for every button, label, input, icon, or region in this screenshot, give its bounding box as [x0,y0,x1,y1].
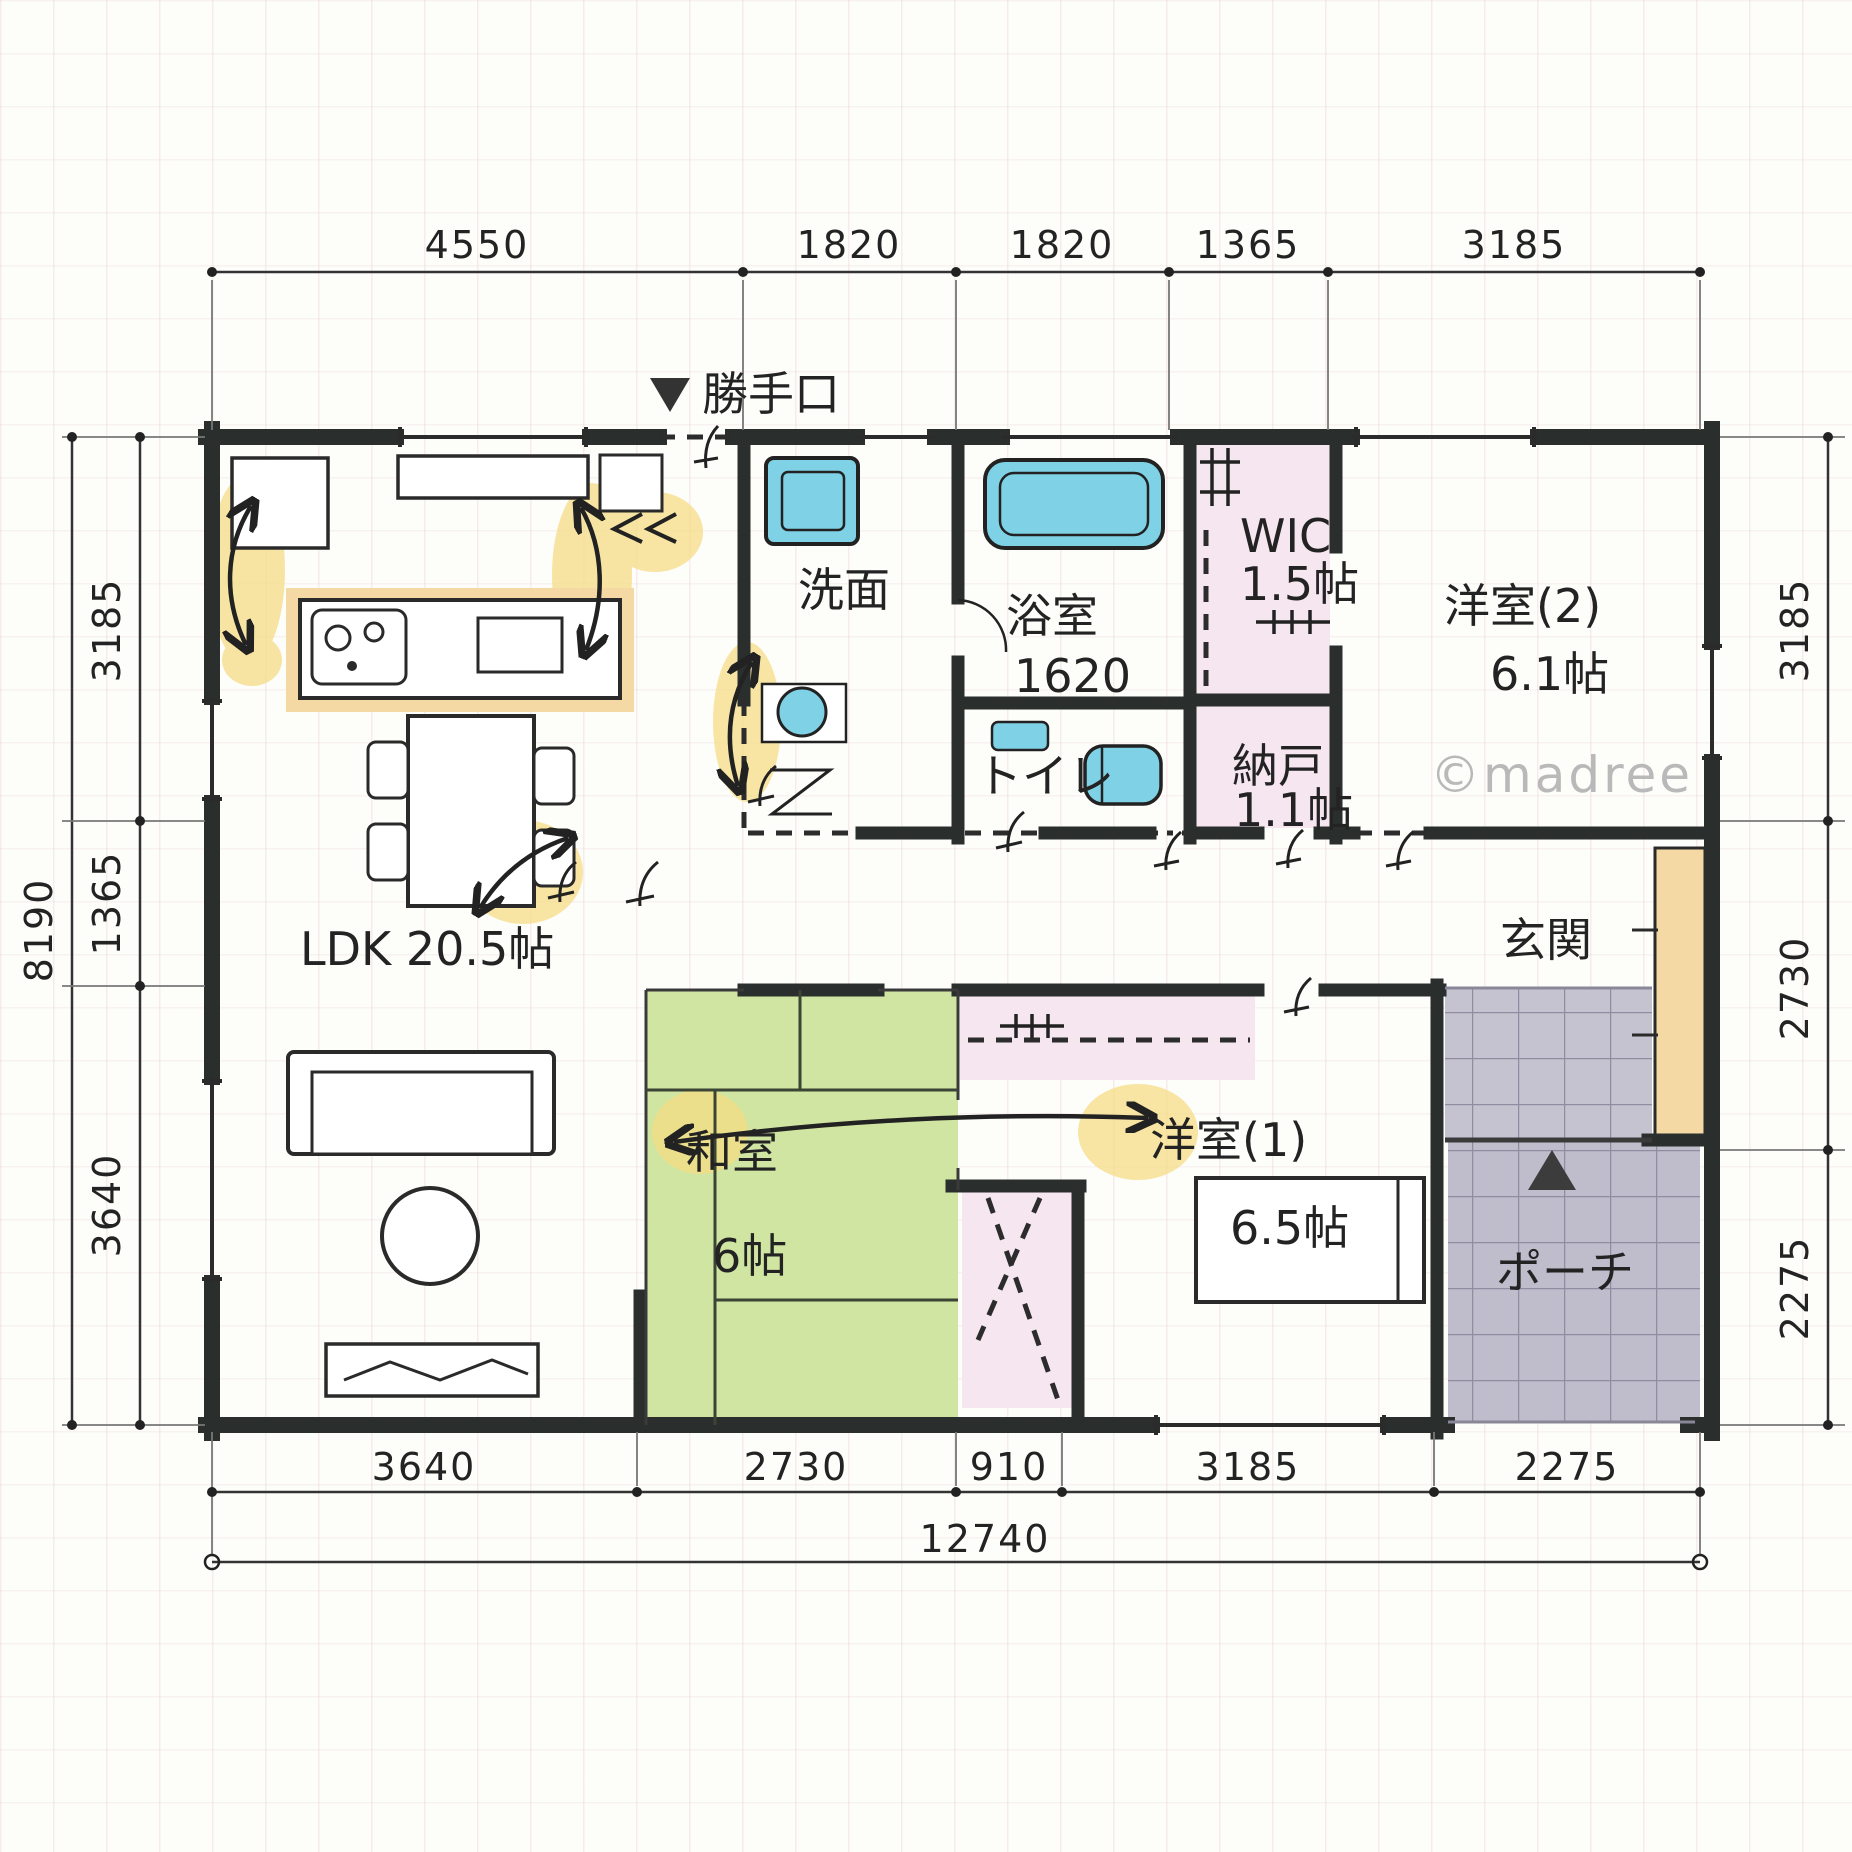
dim-bottom-5: 2275 [1515,1445,1620,1489]
stove-icon [312,610,406,684]
toilet-hand-sink-icon [992,722,1048,750]
floor-plan-drawing: 4550 1820 1820 1365 3185 3640 2730 910 3… [0,0,1852,1852]
dim-top-1: 4550 [425,223,530,267]
chair-icon [368,742,408,798]
entrance-tile-grid [1445,988,1652,1140]
dim-left-1: 3185 [85,578,129,683]
dim-top-2: 1820 [797,223,902,267]
label-wic: WIC [1240,509,1331,563]
door-swing-icon [1386,832,1413,870]
room-tatami-floor [646,990,958,1425]
label-toilet: トイレ [976,749,1114,803]
dining-table-icon [408,716,534,906]
dim-left-2: 1365 [85,851,129,956]
door-swing-icon [1154,832,1181,870]
dim-bottom-4: 3185 [1196,1445,1301,1489]
fridge-icon [232,458,328,548]
wash-basin-icon [778,688,826,736]
label-washroom: 洗面 [798,563,890,617]
label-tatami: 和室 [686,1125,778,1179]
dim-top-4: 1365 [1196,223,1301,267]
sofa-seat [312,1072,532,1154]
dim-right-3: 2275 [1773,1236,1817,1341]
dim-top-5: 3185 [1462,223,1567,267]
chair-icon [368,824,408,880]
label-bedroom1-size: 6.5帖 [1230,1201,1349,1255]
label-tatami-size: 6帖 [712,1229,787,1283]
door-swing-icon [694,426,718,468]
laundry-pan-icon [770,770,832,814]
label-storage-size: 1.1帖 [1234,783,1353,837]
label-ldk: LDK 20.5帖 [300,922,554,976]
kitchen-sink-icon [478,618,562,672]
bedroom1-closet-side-floor [962,1190,1072,1408]
label-backdoor: 勝手口 [702,367,840,421]
dim-bottom-3: 910 [970,1445,1049,1489]
dim-top-3: 1820 [1010,223,1115,267]
label-wic-size: 1.5帖 [1240,557,1359,611]
watermark: ©madree [1430,746,1693,804]
label-bath: 浴室 [1006,589,1098,643]
label-bedroom2: 洋室(2) [1444,579,1601,633]
dim-bottom-2: 2730 [744,1445,849,1489]
stove-burner-small [347,661,357,671]
chair-icon [534,748,574,804]
living-furniture [288,1052,554,1396]
shoe-cabinet [1655,848,1705,1140]
tv-board-icon [326,1344,538,1396]
back-door-step [600,455,662,511]
dim-left-3: 3640 [85,1153,129,1258]
label-bath-size: 1620 [1014,649,1131,703]
bath-door-arc [958,600,1006,652]
dim-right-2: 2730 [1773,936,1817,1041]
back-door-marker-icon [650,378,690,412]
label-bedroom1: 洋室(1) [1150,1113,1307,1167]
label-entrance: 玄関 [1500,913,1592,967]
dim-bottom-1: 3640 [372,1445,477,1489]
dim-bottom-total: 12740 [920,1517,1051,1561]
label-bedroom2-size: 6.1帖 [1490,647,1609,701]
dining-set [368,716,574,906]
round-table-icon [382,1188,478,1284]
door-swing-icon [1284,978,1311,1016]
floor-plan-canvas: 4550 1820 1820 1365 3185 3640 2730 910 3… [0,0,1852,1852]
label-porch: ポーチ [1496,1245,1634,1299]
dim-right-1: 3185 [1773,578,1817,683]
door-swing-icon [626,862,658,906]
kitchen-back-counter [398,456,588,498]
dim-left-outer: 8190 [17,878,61,983]
